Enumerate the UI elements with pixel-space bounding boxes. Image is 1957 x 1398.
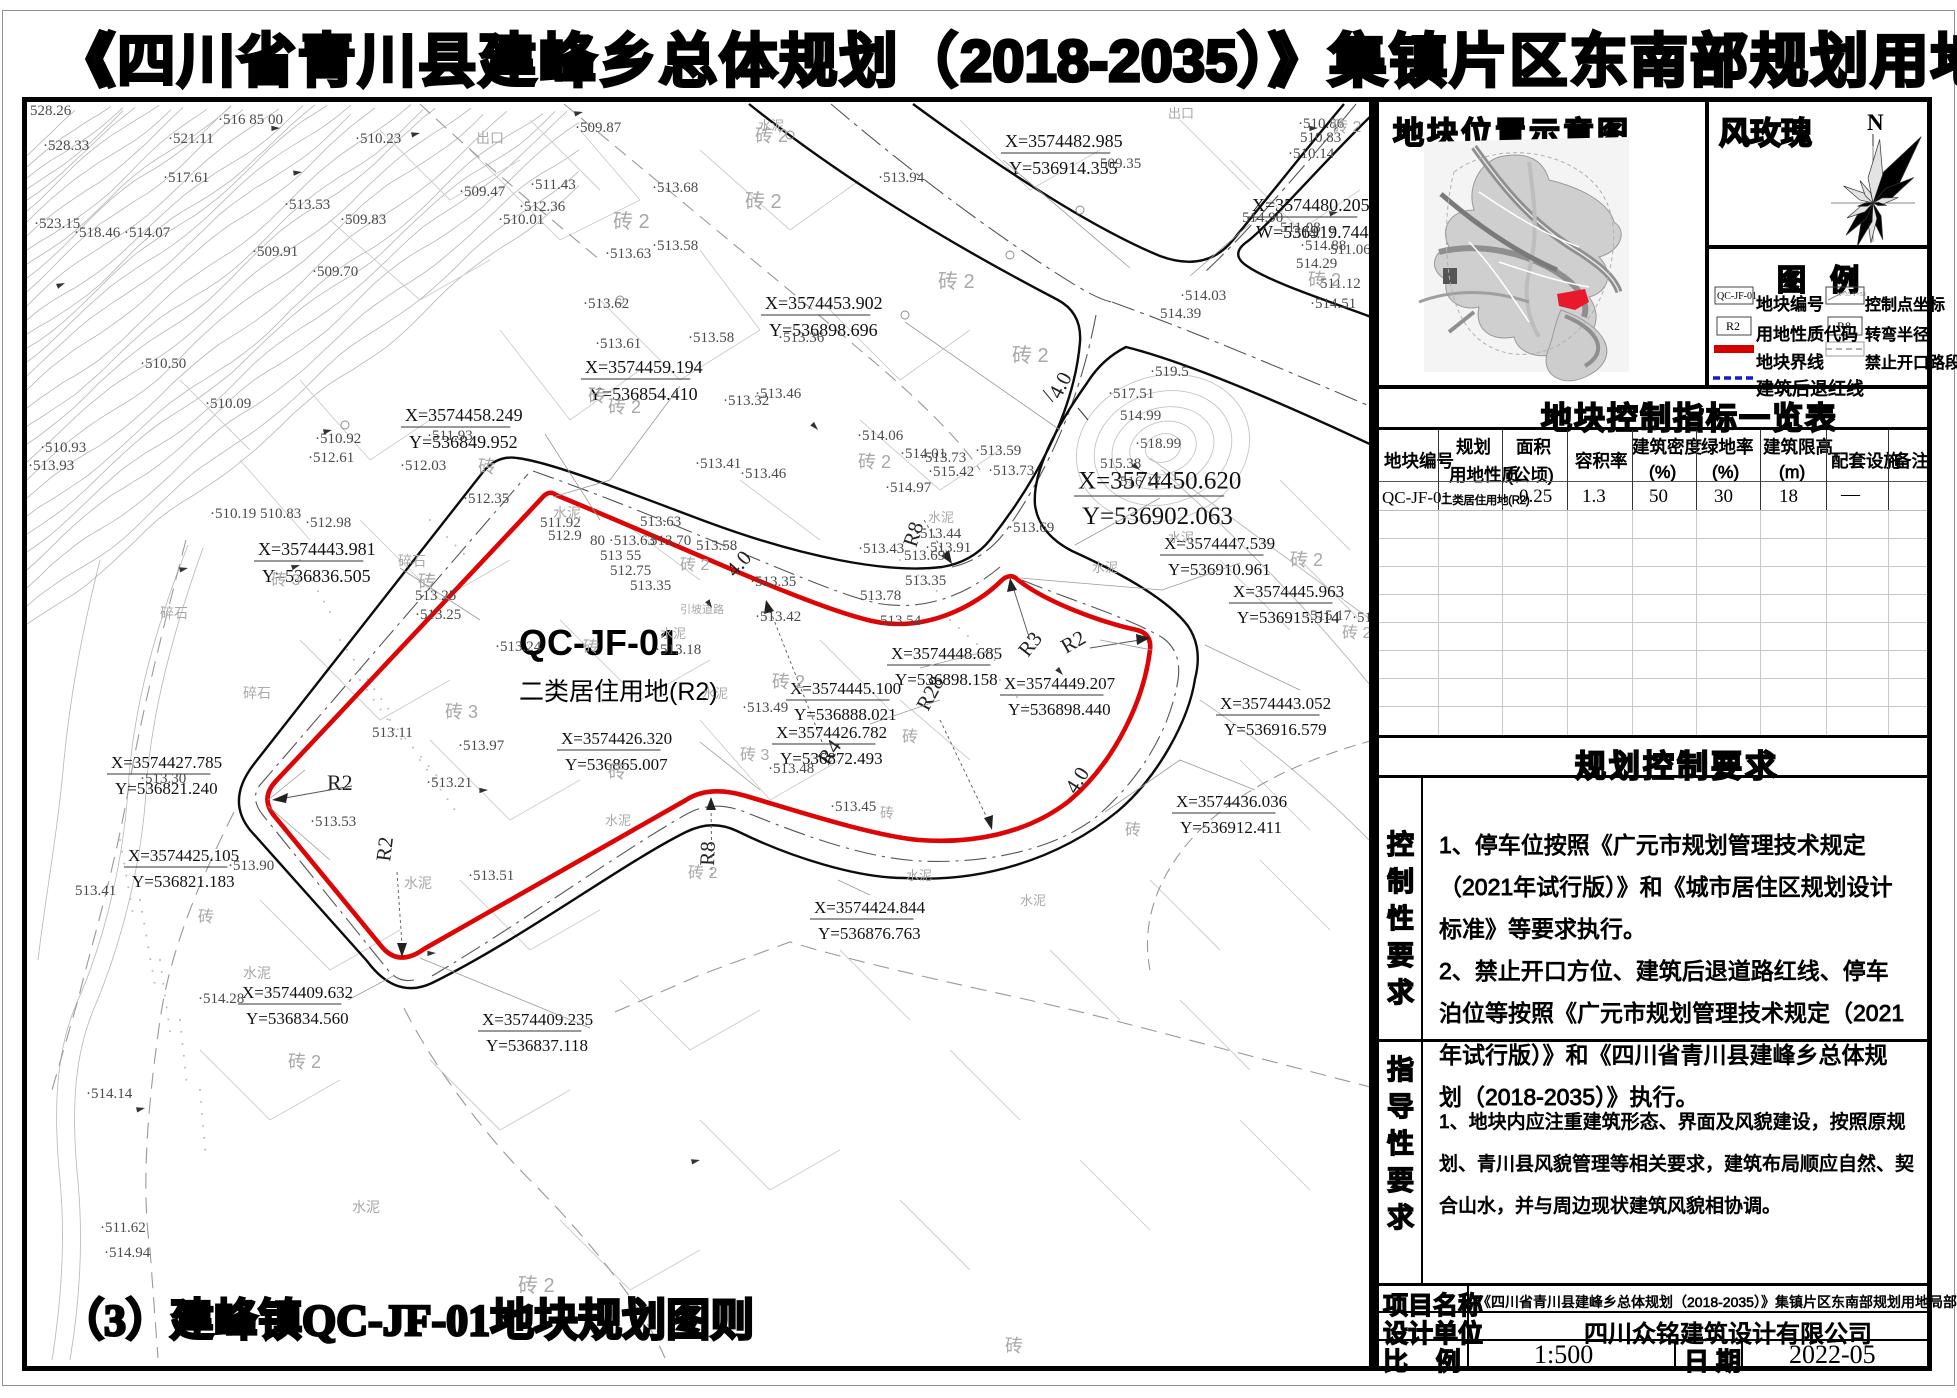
svg-text:砖 2: 砖 2 [745,190,782,213]
svg-text:513.58: 513.58 [696,538,737,554]
svg-text:513.41: 513.41 [75,883,116,899]
svg-text:·514.51: ·514.51 [1310,296,1356,312]
svg-text:砖: 砖 [880,805,894,821]
svg-text:513 55: 513 55 [600,548,641,564]
svg-text:·513.73: ·513.73 [988,463,1034,479]
svg-text:·513.48: ·513.48 [768,761,814,777]
svg-text:砖 3: 砖 3 [445,702,478,722]
svg-text:·510.93: ·510.93 [40,440,86,456]
svg-text:QC-JF-01: QC-JF-01 [1717,291,1757,302]
svg-text:·510.09: ·510.09 [205,396,251,412]
svg-text:·512.03: ·512.03 [400,458,446,474]
svg-text:X=3574482.985: X=3574482.985 [1005,131,1123,151]
svg-text:·513.41: ·513.41 [695,456,741,472]
svg-text:水泥: 水泥 [1092,560,1118,575]
svg-text:碎石: 碎石 [243,685,271,701]
svg-text:R2: R2 [327,770,353,795]
svg-text:R2: R2 [371,835,398,862]
svg-text:X=3574409.632: X=3574409.632 [242,983,353,1002]
svg-text:砖: 砖 [418,572,436,592]
svg-text:水泥: 水泥 [1020,893,1046,908]
svg-text:·513.51: ·513.51 [468,868,514,884]
svg-text:砖: 砖 [583,638,599,656]
svg-text:·514.94: ·514.94 [104,1245,151,1261]
svg-text:砖: 砖 [902,728,918,746]
svg-text:·515 17: ·515 17 [1305,608,1352,624]
svg-text:·514.28: ·514.28 [198,991,244,1007]
svg-text:·509.91: ·509.91 [252,244,298,260]
svg-text:·514.03: ·514.03 [1180,288,1226,304]
svg-text:·509.70: ·509.70 [312,264,358,280]
svg-text:碎石: 碎石 [160,605,188,621]
svg-text:·513.30: ·513.30 [140,771,186,787]
svg-text:·513.35: ·513.35 [750,574,796,590]
svg-text:·511.43: ·511.43 [530,177,576,193]
svg-text:Y=536902.063: Y=536902.063 [1082,503,1233,530]
svg-text:·509.47: ·509.47 [459,184,506,200]
svg-text:砖 3: 砖 3 [740,746,769,764]
svg-text:·510.01: ·510.01 [498,212,544,228]
svg-text:4.0: 4.0 [1060,763,1094,798]
svg-text:513 54: 513 54 [880,613,922,629]
svg-text:X=3574427.785: X=3574427.785 [111,753,222,772]
svg-text:水泥: 水泥 [702,686,728,701]
svg-text:·513.53: ·513.53 [284,197,330,213]
svg-text:·513.24: ·513.24 [495,639,542,655]
svg-text:N: N [1867,110,1884,135]
svg-text:513.11: 513.11 [372,725,413,741]
svg-text:Y=536898.440: Y=536898.440 [1008,700,1111,719]
svg-text:砖 2: 砖 2 [1308,270,1341,290]
svg-text:·513.94: ·513.94 [878,170,925,186]
svg-text:514.39: 514.39 [1160,306,1201,322]
svg-text:·517.51: ·517.51 [1108,386,1154,402]
svg-text:水泥: 水泥 [1168,530,1194,545]
svg-text:·509.83: ·509.83 [340,212,386,228]
svg-text:·510.50: ·510.50 [140,356,186,372]
svg-text:·510.23: ·510.23 [355,131,401,147]
svg-text:砖 2: 砖 2 [772,672,805,692]
svg-text:X=3574445.963: X=3574445.963 [1233,582,1344,601]
svg-text:X=3574449.207: X=3574449.207 [1004,674,1116,693]
svg-text:砖: 砖 [1125,821,1141,839]
svg-text:引坡道路: 引坡道路 [680,602,724,616]
svg-text:·513.36: ·513.36 [778,330,825,346]
svg-text:砖: 砖 [478,457,496,477]
svg-text:513.70: 513.70 [650,533,691,549]
svg-text:X=3574424.844: X=3574424.844 [814,898,926,917]
svg-text:X=3574453.902: X=3574453.902 [765,293,883,313]
svg-text:513.69: 513.69 [904,548,945,564]
svg-text:·513.58: ·513.58 [652,238,698,254]
svg-text:·517.61: ·517.61 [163,170,209,186]
svg-text:砖 2: 砖 2 [858,452,891,472]
svg-text:砖 2: 砖 2 [688,864,717,882]
svg-text:·510.92: ·510.92 [315,431,361,447]
svg-text:·513.45: ·513.45 [830,799,876,815]
svg-text:出口: 出口 [476,130,504,146]
svg-text:·513.68: ·513.68 [652,180,698,196]
svg-text:80 ·513.63: 80 ·513.63 [590,533,655,549]
svg-text:砖: 砖 [198,908,214,926]
svg-text:砖 2: 砖 2 [1290,550,1323,570]
svg-text:·528.33: ·528.33 [43,138,89,154]
svg-text:X=3574458.249: X=3574458.249 [405,405,523,425]
svg-text:·513.46: ·513.46 [755,386,802,402]
svg-text:514.90: 514.90 [1242,210,1283,226]
svg-text:·513.49: ·513.49 [742,700,788,716]
svg-text:出口: 出口 [1168,106,1194,121]
svg-text:·513.63: ·513.63 [605,246,651,262]
svg-text:砖 2: 砖 2 [680,556,709,574]
svg-text:Y=536898.158: Y=536898.158 [895,670,998,689]
svg-text:513.78: 513.78 [860,588,901,604]
svg-text:512.9: 512.9 [548,528,582,544]
svg-text:514.99: 514.99 [1120,408,1161,424]
svg-text:·511.93: ·511.93 [427,428,473,444]
svg-text:X=35 Y=53: X=35 Y=53 [1837,292,1866,298]
svg-text:·512.98: ·512.98 [305,515,351,531]
svg-text:砖: 砖 [1005,1336,1023,1356]
svg-text:·512.35: ·512.35 [463,491,509,507]
svg-text:水泥: 水泥 [758,118,784,133]
svg-text:R8: R8 [695,841,720,866]
svg-text:Y=536821.183: Y=536821.183 [132,872,235,891]
svg-text:水泥: 水泥 [553,505,581,521]
svg-text:水泥: 水泥 [243,965,271,981]
svg-text:·513.97: ·513.97 [458,738,505,754]
svg-text:砖 3: 砖 3 [271,571,300,589]
svg-text:·51: ·51 [1352,610,1369,626]
svg-text:509.35: 509.35 [1100,156,1141,172]
svg-text:X=3574443.052: X=3574443.052 [1220,694,1331,713]
svg-text:·515.42: ·515.42 [928,464,974,480]
svg-text:X=3574436.036: X=3574436.036 [1176,792,1287,811]
svg-text:·513.93: ·513.93 [28,458,74,474]
svg-text:·513.46: ·513.46 [740,466,787,482]
svg-text:砖 2: 砖 2 [938,270,975,293]
svg-text:·513.59: ·513.59 [975,443,1021,459]
svg-text:X=3574448.685: X=3574448.685 [891,644,1002,663]
svg-text:·513.18: ·513.18 [655,642,701,658]
svg-text:·513.53: ·513.53 [310,814,356,830]
svg-text:·518.99: ·518.99 [1135,436,1181,452]
svg-text:水泥: 水泥 [660,626,686,641]
svg-text:·514.01: ·514.01 [900,446,946,462]
svg-text:·509.87: ·509.87 [575,120,622,136]
svg-text:·513.43: ·513.43 [858,541,904,557]
svg-text:516 17: 516 17 [1120,474,1162,490]
svg-text:·510.19 510.83: ·510.19 510.83 [210,506,301,522]
svg-text:X=3574425.105: X=3574425.105 [128,846,239,865]
svg-text:R2: R2 [1057,625,1090,658]
svg-text:砖 2: 砖 2 [1342,624,1369,642]
svg-text:X=3574409.235: X=3574409.235 [482,1010,593,1029]
svg-text:砖 2: 砖 2 [608,397,641,417]
svg-text:·513.61: ·513.61 [595,336,641,352]
svg-text:X=3574426.782: X=3574426.782 [776,723,887,742]
svg-text:Y=536910.961: Y=536910.961 [1168,560,1271,579]
svg-text:·513.42: ·513.42 [755,609,801,625]
svg-text:·514.06: ·514.06 [857,428,904,444]
svg-text:砖 2: 砖 2 [1332,118,1361,136]
svg-text:Y=536888.021: Y=536888.021 [794,705,897,724]
svg-text:水泥: 水泥 [605,813,631,828]
svg-text:R3: R3 [1013,627,1047,661]
svg-text:513.63: 513.63 [640,514,681,530]
svg-text:Y=536876.763: Y=536876.763 [818,924,921,943]
svg-text:·513.90: ·513.90 [228,858,274,874]
svg-text:513.35: 513.35 [630,578,671,594]
svg-text:Y=536837.118: Y=536837.118 [486,1036,588,1055]
svg-text:二类居住用地(R2): 二类居住用地(R2) [519,678,718,706]
svg-text:碎石: 碎石 [398,553,426,569]
svg-text:Y=536912.411: Y=536912.411 [1180,818,1282,837]
svg-text:水泥: 水泥 [352,1199,380,1215]
svg-text:·510.14: ·510.14 [1288,146,1335,162]
svg-text:砖: 砖 [588,386,606,406]
svg-text:Y=536916.579: Y=536916.579 [1224,720,1327,739]
svg-text:R2: R2 [1726,319,1740,333]
svg-text:水泥: 水泥 [404,875,432,891]
svg-text:·513.69: ·513.69 [1008,520,1054,536]
svg-text:·521.11: ·521.11 [168,131,214,147]
svg-text:·511.62: ·511.62 [100,1220,146,1236]
svg-text:水泥: 水泥 [906,868,932,883]
svg-text:·512.61: ·512.61 [308,450,354,466]
svg-text:528.26: 528.26 [30,103,72,119]
svg-text:4.0: 4.0 [1043,368,1077,402]
svg-text:·519.5: ·519.5 [1150,364,1189,380]
svg-text:X=3574426.320: X=3574426.320 [561,729,672,748]
svg-text:·514.14: ·514.14 [86,1086,133,1102]
svg-text:砖 2: 砖 2 [288,1052,321,1072]
svg-text:水泥: 水泥 [928,510,954,525]
svg-text:X=3574459.194: X=3574459.194 [585,357,703,377]
svg-text:X=3574443.981: X=3574443.981 [258,539,376,559]
svg-text:·513.25: ·513.25 [415,607,461,623]
svg-text:Y=536834.560: Y=536834.560 [246,1009,349,1028]
svg-text:·513.21: ·513.21 [426,775,472,791]
svg-text:X=3574445.100: X=3574445.100 [790,679,901,698]
svg-text:·516 85 00: ·516 85 00 [218,112,283,128]
svg-text:·514.97: ·514.97 [885,480,932,496]
svg-text:·513.62: ·513.62 [583,296,629,312]
svg-text:砖 2: 砖 2 [1012,344,1049,367]
svg-text:513.35: 513.35 [905,573,946,589]
svg-text:·518.46 ·514.07: ·518.46 ·514.07 [74,225,171,241]
svg-text:砖: 砖 [608,762,626,782]
svg-text:512.75: 512.75 [610,563,651,579]
svg-text:砖 2: 砖 2 [613,210,650,233]
svg-text:·513.58: ·513.58 [688,330,734,346]
